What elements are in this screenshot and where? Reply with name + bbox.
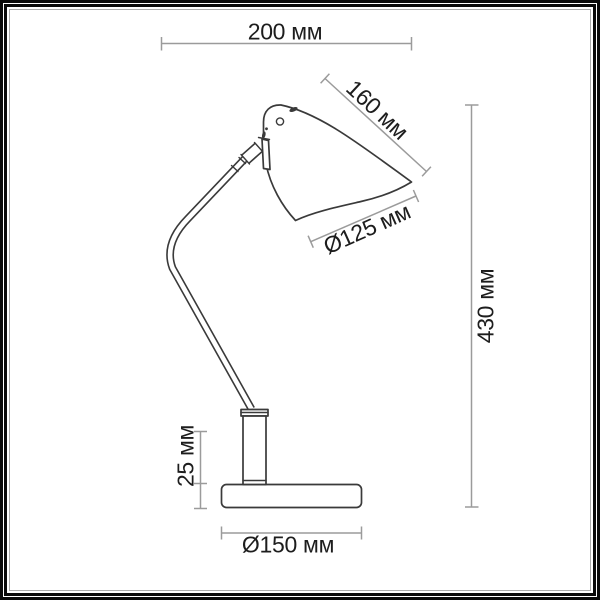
lamp-base: [222, 485, 362, 508]
dim-label-base-diameter: Ø150 мм: [242, 532, 334, 559]
lamp-pole: [241, 410, 268, 485]
dim-label-height: 430 мм: [473, 269, 500, 344]
hinge-bracket-plate: [262, 139, 270, 170]
dim-label-base-height: 25 мм: [173, 425, 200, 487]
hinge-joint: [241, 138, 270, 170]
drawing-canvas: 200 мм 160 мм Ø125 мм 430 мм 25 мм Ø150 …: [0, 0, 600, 600]
dim-label-width: 200 мм: [248, 19, 323, 46]
lamp-arm: [170, 147, 256, 409]
lamp-dimension-drawing: [0, 0, 600, 600]
shade-edge-dot: [265, 127, 268, 130]
